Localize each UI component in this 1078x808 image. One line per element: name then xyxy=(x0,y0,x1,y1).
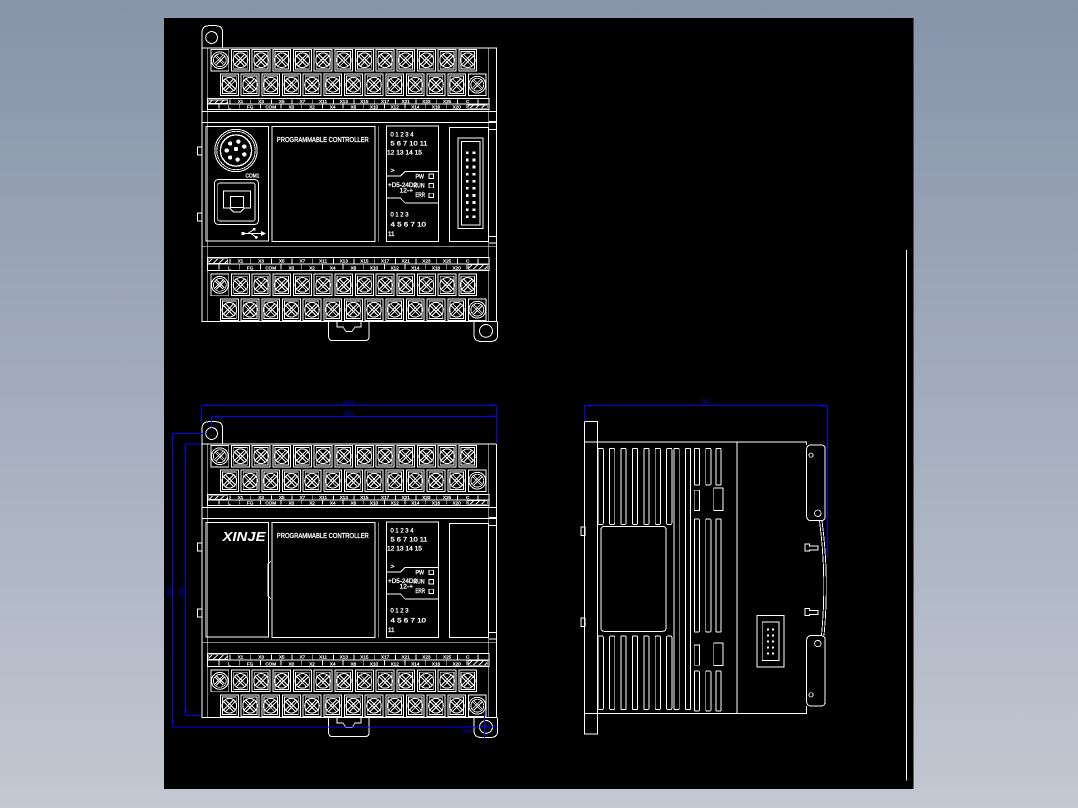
svg-text:X1: X1 xyxy=(238,495,244,500)
svg-text:PROGRAMMABLE CONTROLLER: PROGRAMMABLE CONTROLLER xyxy=(277,137,369,144)
svg-text:294.6: 294.6 xyxy=(167,586,173,598)
svg-text:X11: X11 xyxy=(319,655,327,660)
svg-text:FG: FG xyxy=(247,661,254,666)
svg-text:X12: X12 xyxy=(391,661,400,666)
svg-text:5 6 7 10 11: 5 6 7 10 11 xyxy=(391,537,429,543)
svg-text:X23: X23 xyxy=(422,655,431,660)
svg-text:X25: X25 xyxy=(443,259,452,264)
svg-text:X25: X25 xyxy=(443,495,452,500)
svg-text:FG: FG xyxy=(247,265,254,270)
svg-text:X14: X14 xyxy=(411,500,420,505)
svg-text:X15: X15 xyxy=(360,655,369,660)
svg-text:X1: X1 xyxy=(238,259,244,264)
svg-text:X3: X3 xyxy=(258,495,264,500)
svg-text:X13: X13 xyxy=(340,495,349,500)
svg-text:X0: X0 xyxy=(289,265,295,270)
svg-text:X25: X25 xyxy=(443,655,452,660)
svg-text:X16: X16 xyxy=(432,661,441,666)
svg-text:COM: COM xyxy=(265,500,276,505)
svg-text:X6: X6 xyxy=(351,661,357,666)
svg-text:X4: X4 xyxy=(330,265,336,270)
svg-text:X4: X4 xyxy=(330,661,336,666)
svg-text:X3: X3 xyxy=(258,655,264,660)
svg-text:PW: PW xyxy=(416,571,425,577)
svg-text:X2: X2 xyxy=(309,265,315,270)
svg-text:>: > xyxy=(391,168,396,174)
svg-text:X12: X12 xyxy=(391,104,400,109)
svg-text:X13: X13 xyxy=(340,99,349,104)
svg-text:X16: X16 xyxy=(432,265,441,270)
svg-text:4 5 6 7 10: 4 5 6 7 10 xyxy=(391,222,427,228)
svg-text:X2: X2 xyxy=(309,104,315,109)
svg-text:X14: X14 xyxy=(411,104,420,109)
svg-text:X10: X10 xyxy=(370,104,379,109)
svg-text:COM: COM xyxy=(265,104,276,109)
svg-text:0 1 2 3: 0 1 2 3 xyxy=(391,609,410,615)
svg-text:X5: X5 xyxy=(279,495,285,500)
svg-text:X20: X20 xyxy=(453,104,462,109)
svg-text:X12: X12 xyxy=(391,265,400,270)
svg-text:X20: X20 xyxy=(453,500,462,505)
svg-text:X7: X7 xyxy=(300,495,306,500)
svg-text:X10: X10 xyxy=(370,500,379,505)
svg-text:X14: X14 xyxy=(411,661,420,666)
svg-text:X10: X10 xyxy=(370,661,379,666)
svg-text:RUN: RUN xyxy=(414,184,425,190)
svg-text:FG: FG xyxy=(247,500,254,505)
svg-text:4 5 6 7 10: 4 5 6 7 10 xyxy=(391,618,427,624)
svg-text:COM: COM xyxy=(265,661,276,666)
svg-text:12-+: 12-+ xyxy=(400,585,414,591)
svg-text:X1: X1 xyxy=(238,655,244,660)
svg-text:11: 11 xyxy=(388,628,395,634)
svg-text:0 1 2 3 4: 0 1 2 3 4 xyxy=(391,132,415,138)
svg-text:X21: X21 xyxy=(402,655,411,660)
svg-text:X25: X25 xyxy=(443,99,452,104)
svg-text:X16: X16 xyxy=(432,104,441,109)
svg-text:264: 264 xyxy=(462,729,471,735)
svg-text:X0: X0 xyxy=(289,500,295,505)
svg-text:COM1: COM1 xyxy=(246,174,260,180)
svg-text:X20: X20 xyxy=(453,265,462,270)
svg-text:XINJE: XINJE xyxy=(221,529,266,544)
svg-text:X16: X16 xyxy=(432,500,441,505)
svg-text:X11: X11 xyxy=(319,99,327,104)
svg-text:X11: X11 xyxy=(319,495,327,500)
svg-text:0 1 2 3: 0 1 2 3 xyxy=(391,213,410,219)
svg-text:X23: X23 xyxy=(422,259,431,264)
svg-text:X23: X23 xyxy=(422,99,431,104)
svg-text:X5: X5 xyxy=(279,259,285,264)
svg-text:305.6: 305.6 xyxy=(343,400,355,406)
svg-text:X7: X7 xyxy=(300,99,306,104)
svg-text:0 1 2 3 4: 0 1 2 3 4 xyxy=(391,528,415,534)
svg-text:RUN: RUN xyxy=(414,580,425,586)
svg-text:X5: X5 xyxy=(279,99,285,104)
svg-text:>: > xyxy=(391,564,396,570)
svg-text:X6: X6 xyxy=(351,500,357,505)
svg-text:X0: X0 xyxy=(289,104,295,109)
svg-text:X7: X7 xyxy=(300,259,306,264)
svg-text:283: 283 xyxy=(180,587,186,596)
svg-text:X17: X17 xyxy=(381,495,390,500)
svg-text:COM: COM xyxy=(265,265,276,270)
svg-text:PW: PW xyxy=(416,175,425,181)
svg-text:X4: X4 xyxy=(330,500,336,505)
svg-text:X17: X17 xyxy=(381,655,390,660)
svg-text:X6: X6 xyxy=(351,104,357,109)
svg-text:X21: X21 xyxy=(402,99,411,104)
svg-text:X15: X15 xyxy=(360,99,369,104)
svg-text:X12: X12 xyxy=(391,500,400,505)
svg-text:X15: X15 xyxy=(360,495,369,500)
svg-text:PROGRAMMABLE CONTROLLER: PROGRAMMABLE CONTROLLER xyxy=(277,533,369,540)
svg-text:FG: FG xyxy=(247,104,254,109)
svg-text:X6: X6 xyxy=(351,265,357,270)
svg-text:X0: X0 xyxy=(289,661,295,666)
svg-text:ERR: ERR xyxy=(416,193,426,199)
svg-text:5 6 7 10 11: 5 6 7 10 11 xyxy=(391,141,429,147)
svg-text:11: 11 xyxy=(388,232,395,238)
svg-text:X3: X3 xyxy=(258,99,264,104)
svg-text:X11: X11 xyxy=(319,259,327,264)
svg-text:X7: X7 xyxy=(300,655,306,660)
svg-text:X4: X4 xyxy=(330,104,336,109)
svg-text:X21: X21 xyxy=(402,495,411,500)
svg-text:X10: X10 xyxy=(370,265,379,270)
svg-text:90: 90 xyxy=(702,399,709,405)
svg-text:X14: X14 xyxy=(411,265,420,270)
svg-text:X17: X17 xyxy=(381,259,390,264)
svg-text:X2: X2 xyxy=(309,661,315,666)
svg-text:X15: X15 xyxy=(360,259,369,264)
svg-text:X3: X3 xyxy=(258,259,264,264)
svg-text:X17: X17 xyxy=(381,99,390,104)
svg-text:X1: X1 xyxy=(238,99,244,104)
svg-text:12 13 14 15: 12 13 14 15 xyxy=(387,151,423,157)
svg-text:300: 300 xyxy=(344,411,353,417)
svg-text:ERR: ERR xyxy=(416,589,426,595)
svg-text:L: L xyxy=(228,265,231,270)
svg-text:12 13 14 15: 12 13 14 15 xyxy=(387,547,423,553)
svg-text:X5: X5 xyxy=(279,655,285,660)
svg-text:X21: X21 xyxy=(402,259,411,264)
svg-text:X13: X13 xyxy=(340,259,349,264)
svg-text:12-+: 12-+ xyxy=(400,189,414,195)
svg-text:X23: X23 xyxy=(422,495,431,500)
svg-text:X2: X2 xyxy=(309,500,315,505)
svg-text:L: L xyxy=(228,104,231,109)
svg-text:L: L xyxy=(228,661,231,666)
svg-text:X20: X20 xyxy=(453,661,462,666)
svg-text:X13: X13 xyxy=(340,655,349,660)
svg-text:L: L xyxy=(228,500,231,505)
